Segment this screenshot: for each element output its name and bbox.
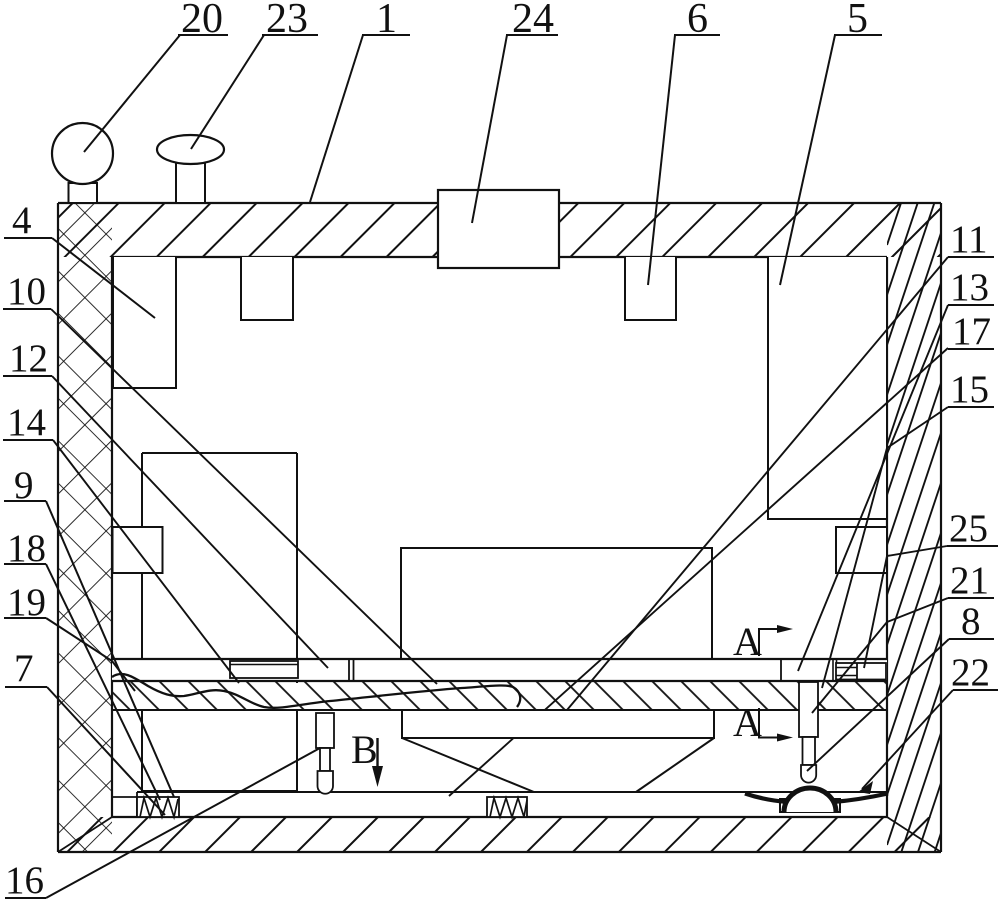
svg-text:8: 8 [961, 600, 981, 643]
svg-text:25: 25 [949, 507, 988, 550]
svg-text:4: 4 [12, 199, 32, 242]
svg-text:11: 11 [950, 218, 988, 261]
svg-text:7: 7 [14, 647, 34, 690]
svg-text:15: 15 [950, 368, 989, 411]
svg-text:13: 13 [950, 266, 989, 309]
svg-text:16: 16 [5, 859, 44, 902]
svg-text:A: A [733, 700, 762, 745]
svg-text:10: 10 [7, 270, 46, 313]
svg-text:22: 22 [951, 651, 990, 694]
svg-text:17: 17 [952, 310, 991, 353]
svg-text:B: B [351, 727, 378, 772]
svg-text:21: 21 [950, 559, 989, 602]
svg-text:A: A [733, 619, 762, 664]
svg-text:14: 14 [7, 401, 46, 444]
svg-text:12: 12 [9, 337, 48, 380]
